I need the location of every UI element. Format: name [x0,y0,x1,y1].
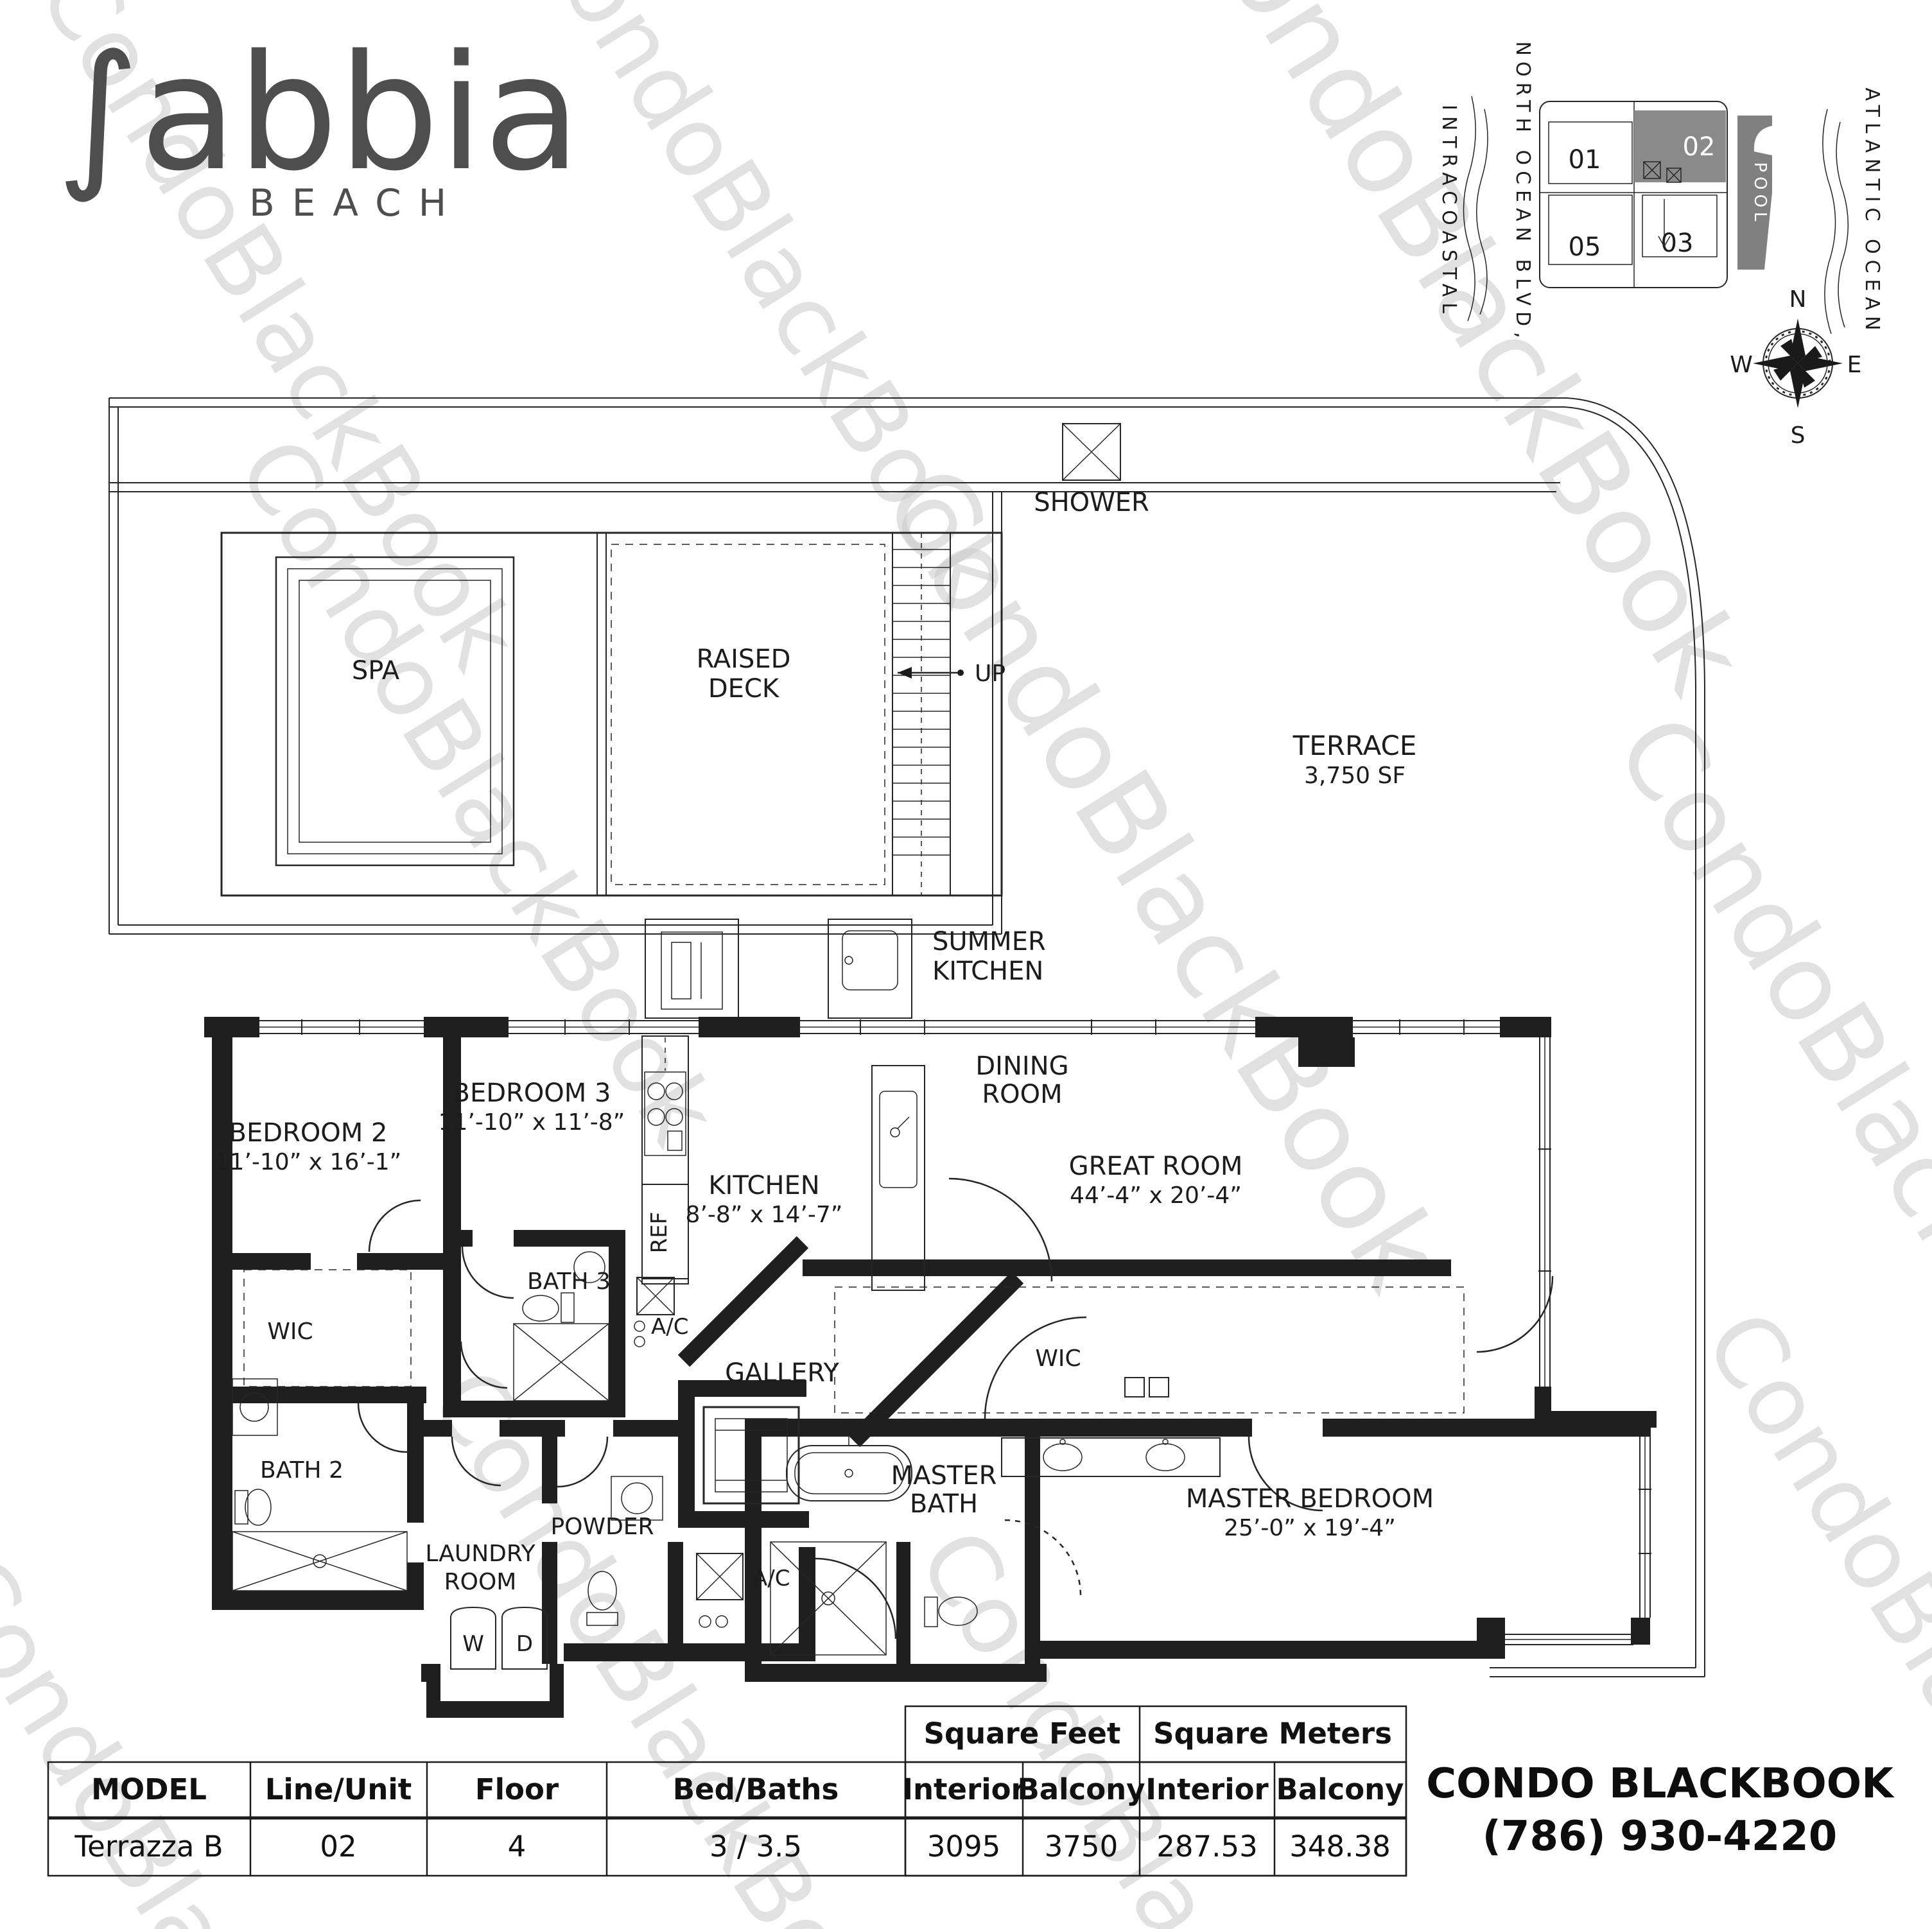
gallery: GALLERY [725,1358,839,1388]
ac-closet-upper: A/C [634,1277,688,1347]
bath3-label: BATH 3 [527,1268,611,1295]
master-bedroom: MASTER BEDROOM 25’-0” x 19’-4” [1186,1484,1434,1541]
building-key-plan: 01 02 05 03 POOL [1540,101,1772,288]
bath-3: BATH 3 [514,1252,611,1401]
bath2-toilet [245,1489,271,1525]
master-bedroom-dims: 25’-0” x 19’-4” [1224,1515,1396,1541]
gallery-label: GALLERY [725,1358,839,1388]
dryer-label: D [516,1631,533,1657]
atlantic-ocean-label: ATLANTIC OCEAN [1861,87,1883,336]
laundry-room: LAUNDRY ROOM W D [425,1541,547,1669]
cell-sf-balcony: 3750 [1045,1830,1118,1864]
cell-sm-interior: 287.53 [1156,1830,1257,1864]
powder-label: POWDER [550,1514,654,1540]
raised-deck-label-2: DECK [708,674,780,704]
cell-model: Terrazza B [74,1830,223,1864]
compass-s: S [1791,422,1806,449]
brand-name: CONDO BLACKBOOK [1426,1760,1895,1808]
unit-02-label: 02 [1683,132,1716,162]
bedroom-3: BEDROOM 3 11’-10” x 11’-8” [439,1078,625,1136]
shower-label: SHOWER [1034,488,1149,517]
wic-left: WIC [244,1270,411,1387]
intracoastal-label: INTRACOASTAL [1438,105,1460,319]
group-header-square-feet: Square Feet [924,1717,1121,1751]
up-label: UP [975,661,1005,687]
laundry-label-2: ROOM [444,1569,517,1595]
bedroom3-label: BEDROOM 3 [453,1078,611,1108]
terrace-shower: SHOWER [1034,424,1149,517]
summer-kitchen-label-2: KITCHEN [932,956,1043,986]
spa-label: SPA [352,656,400,686]
great-room-dims: 44’-4” x 20’-4” [1070,1182,1242,1209]
bath-2: BATH 2 [232,1379,407,1591]
footer-brand: CONDO BLACKBOOK (786) 930-4220 [1426,1760,1895,1860]
terrace-area: 3,750 SF [1304,763,1405,789]
bath3-toilet [523,1295,559,1321]
col-sf-interior: Interior [902,1772,1025,1806]
dining-label-1: DINING [975,1051,1068,1081]
wic-left-label: WIC [267,1319,313,1345]
cell-sf-interior: 3095 [927,1830,1001,1864]
bedroom-2: BEDROOM 2 11’-10” x 16’-1” [215,1118,402,1175]
col-floor: Floor [475,1772,559,1806]
brand-phone: (786) 930-4220 [1483,1813,1838,1860]
ac-lower-label: A/C [753,1566,790,1591]
bedroom2-label: BEDROOM 2 [229,1118,388,1148]
table-row: Terrazza B 02 4 3 / 3.5 3095 3750 287.53… [74,1830,1390,1864]
wic-master-label: WIC [1035,1345,1081,1372]
unit-05-label: 05 [1569,232,1601,262]
compass-n: N [1789,286,1807,313]
north-ocean-blvd-label: NORTH OCEAN BLVD, [1511,41,1534,343]
dining-room: DINING ROOM [975,1051,1068,1109]
logo-sub: BEACH [249,181,464,225]
summer-kitchen-label-1: SUMMER [932,927,1046,956]
raised-deck-label-1: RAISED [697,644,791,674]
island-sink [880,1091,917,1188]
col-sm-balcony: Balcony [1276,1772,1404,1806]
great-room-label: GREAT ROOM [1069,1152,1243,1181]
raised-deck-dashed-edge [611,544,885,885]
cell-sm-balcony: 348.38 [1289,1830,1390,1864]
master-bedroom-label: MASTER BEDROOM [1186,1484,1434,1514]
laundry-label-1: LAUNDRY [425,1541,535,1567]
pool-shape: POOL [1737,116,1772,270]
atlantic-waves [1823,109,1848,334]
watermark-text: CondoBlackBook [1160,0,1770,715]
compass-e: E [1847,352,1862,378]
col-bed-baths: Bed/Baths [673,1772,839,1806]
kitchen-label: KITCHEN [708,1171,819,1200]
ref-label: REF [647,1212,672,1254]
col-line-unit: Line/Unit [265,1772,412,1806]
up-arrow: UP [898,661,1005,687]
group-header-square-meters: Square Meters [1153,1717,1392,1751]
col-model: MODEL [91,1772,207,1806]
bedroom3-dims: 11’-10” x 11’-8” [439,1109,625,1136]
unit-01-label: 01 [1569,145,1601,175]
kitchen-dims: 8’-8” x 14’-7” [686,1202,843,1228]
bedroom2-dims: 11’-10” x 16’-1” [215,1149,402,1175]
wic-master: WIC [835,1287,1464,1413]
cell-bed-baths: 3 / 3.5 [709,1830,802,1864]
washer-label: W [462,1631,484,1657]
cell-line-unit: 02 [320,1830,356,1864]
col-sm-interior: Interior [1145,1772,1269,1806]
terrace-label: TERRACE [1292,730,1417,761]
cell-floor: 4 [508,1830,527,1864]
logo-wordmark: ∫abbia [57,21,581,206]
master-bath-label-1: MASTER [891,1461,997,1491]
master-bath-label-2: BATH [910,1489,978,1519]
ac-upper-label: A/C [651,1314,688,1340]
dining-label-2: ROOM [982,1080,1062,1109]
floorplan-sheet: CondoBlackBook CondoBlackBook CondoBlack… [0,0,1932,1929]
pool-label: POOL [1750,162,1770,225]
logo: ∫abbia BEACH [57,21,581,225]
great-room: GREAT ROOM 44’-4” x 20’-4” [1069,1152,1243,1209]
compass-rose: N E S W [1730,286,1861,449]
compass-w: W [1730,352,1753,378]
bath2-label: BATH 2 [260,1457,344,1484]
ac-closet-lower: A/C [697,1553,790,1627]
col-sf-balcony: Balcony [1017,1772,1145,1806]
